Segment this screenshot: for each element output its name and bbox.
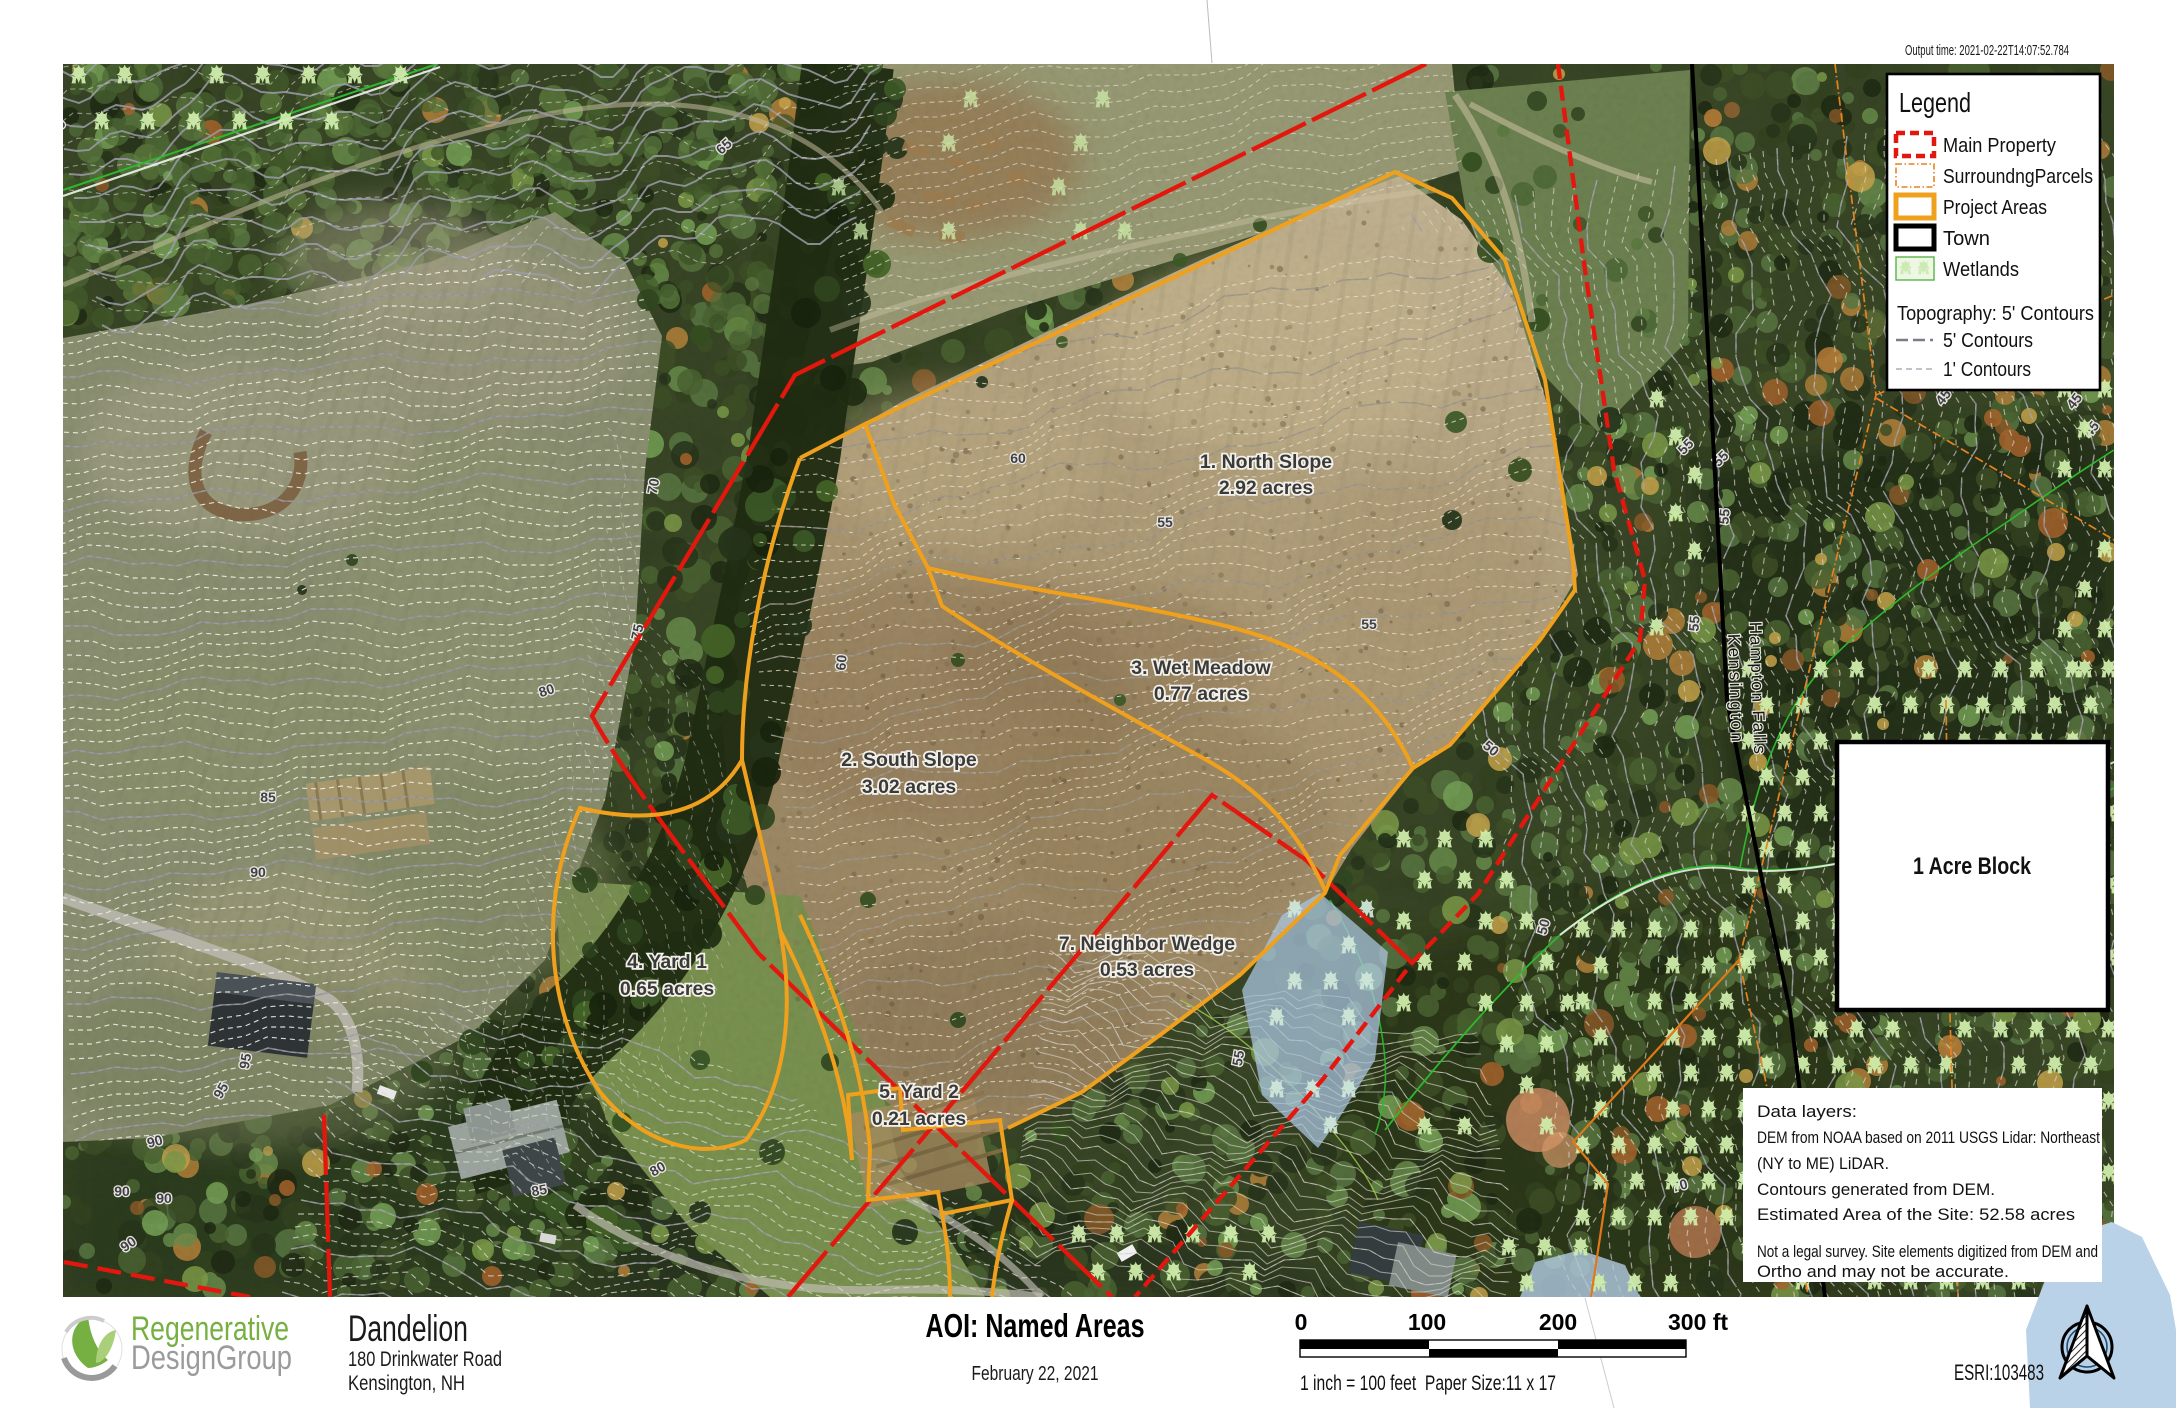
svg-text:90: 90 (156, 1190, 172, 1206)
svg-text:85: 85 (530, 1181, 548, 1199)
svg-text:DesignGroup: DesignGroup (131, 1339, 292, 1377)
svg-text:Not a legal survey. Site eleme: Not a legal survey. Site elements digiti… (1757, 1242, 2098, 1261)
svg-text:95: 95 (236, 1052, 254, 1070)
svg-text:1 Acre Block: 1 Acre Block (1913, 853, 2032, 880)
svg-text:2.92 acres: 2.92 acres (1219, 477, 1313, 499)
svg-text:Data layers:: Data layers: (1757, 1102, 1857, 1121)
svg-text:Estimated Area of the Site: 52: Estimated Area of the Site: 52.58 acres (1757, 1205, 2075, 1224)
svg-text:180 Drinkwater Road: 180 Drinkwater Road (348, 1348, 502, 1371)
svg-text:0: 0 (1295, 1309, 1308, 1335)
svg-text:4. Yard 1: 4. Yard 1 (627, 951, 707, 973)
svg-text:5. Yard 2: 5. Yard 2 (879, 1081, 959, 1103)
svg-text:85: 85 (260, 789, 276, 805)
svg-text:0.53 acres: 0.53 acres (1100, 959, 1194, 981)
svg-text:Output time: 2021-02-22T14:07:: Output time: 2021-02-22T14:07:52.784 (1905, 42, 2069, 59)
svg-text:2. South Slope: 2. South Slope (841, 749, 977, 771)
svg-text:ESRI:103483: ESRI:103483 (1954, 1360, 2044, 1385)
svg-text:0.65 acres: 0.65 acres (620, 978, 714, 1000)
svg-text:Main Property: Main Property (1943, 135, 2056, 157)
svg-text:3.02 acres: 3.02 acres (862, 776, 956, 798)
svg-text:7. Neighbor Wedge: 7. Neighbor Wedge (1059, 933, 1235, 955)
svg-text:Contours generated from DEM.: Contours generated from DEM. (1757, 1180, 1995, 1199)
svg-text:AOI: Named Areas: AOI: Named Areas (926, 1307, 1145, 1344)
svg-text:55: 55 (1229, 1049, 1247, 1067)
svg-text:Topography: 5' Contours: Topography: 5' Contours (1897, 302, 2094, 325)
svg-text:SurroundngParcels: SurroundngParcels (1943, 166, 2093, 188)
svg-text:55: 55 (1157, 514, 1173, 530)
svg-text:0.77 acres: 0.77 acres (1154, 683, 1248, 705)
svg-text:60: 60 (832, 654, 849, 671)
svg-text:Legend: Legend (1899, 87, 1971, 118)
svg-text:1' Contours: 1' Contours (1943, 359, 2031, 381)
svg-text:90: 90 (114, 1183, 130, 1199)
svg-text:90: 90 (250, 864, 266, 880)
svg-text:60: 60 (1010, 450, 1026, 466)
svg-text:(NY to ME) LiDAR.: (NY to ME) LiDAR. (1757, 1154, 1889, 1173)
svg-text:February 22, 2021: February 22, 2021 (972, 1363, 1099, 1385)
svg-text:Town: Town (1943, 228, 1990, 250)
svg-text:1. North Slope: 1. North Slope (1200, 451, 1332, 473)
svg-text:Dandelion: Dandelion (348, 1308, 468, 1349)
svg-text:55: 55 (1685, 615, 1702, 632)
svg-text:55: 55 (1361, 616, 1377, 632)
svg-text:Kensington, NH: Kensington, NH (348, 1372, 465, 1395)
svg-text:Wetlands: Wetlands (1943, 259, 2019, 281)
svg-text:300 ft: 300 ft (1668, 1309, 1728, 1335)
svg-text:DEM from NOAA based on 2011 US: DEM from NOAA based on 2011 USGS Lidar: … (1757, 1128, 2100, 1147)
svg-text:Project Areas: Project Areas (1943, 197, 2047, 219)
svg-text:70: 70 (644, 477, 662, 495)
svg-text:100: 100 (1408, 1309, 1446, 1335)
svg-text:0.21 acres: 0.21 acres (872, 1108, 966, 1130)
svg-text:200: 200 (1539, 1309, 1577, 1335)
svg-text:3. Wet Meadow: 3. Wet Meadow (1131, 657, 1271, 679)
svg-text:Ortho and may not be accurate.: Ortho and may not be accurate. (1757, 1262, 2009, 1281)
svg-text:1 inch = 100 feet Paper Size:: 1 inch = 100 feet Paper Size:11 x 17 (1300, 1372, 1556, 1395)
svg-text:5' Contours: 5' Contours (1943, 330, 2033, 352)
